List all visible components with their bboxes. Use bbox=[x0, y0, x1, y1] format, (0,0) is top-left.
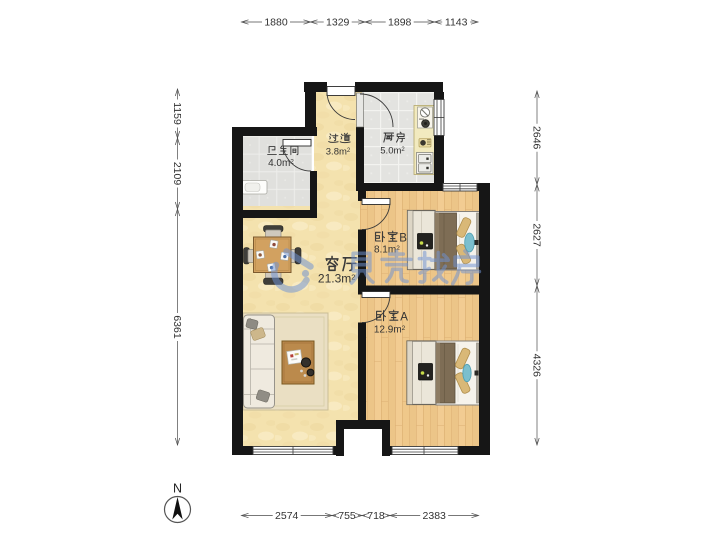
svg-text:1143: 1143 bbox=[445, 17, 468, 29]
svg-text:4326: 4326 bbox=[530, 354, 542, 378]
svg-text:1880: 1880 bbox=[264, 17, 288, 29]
svg-text:2646: 2646 bbox=[530, 126, 542, 150]
svg-text:718: 718 bbox=[367, 510, 385, 522]
svg-text:2627: 2627 bbox=[530, 223, 542, 247]
svg-text:N: N bbox=[173, 482, 182, 496]
svg-text:1329: 1329 bbox=[326, 17, 350, 29]
svg-text:21.3m2: 21.3m2 bbox=[318, 272, 356, 286]
svg-text:2574: 2574 bbox=[275, 510, 299, 522]
svg-text:755: 755 bbox=[338, 510, 356, 522]
svg-text:B: B bbox=[399, 232, 407, 244]
svg-text:12.9m2: 12.9m2 bbox=[374, 324, 406, 335]
svg-text:A: A bbox=[400, 311, 408, 323]
svg-text:2383: 2383 bbox=[423, 510, 447, 522]
svg-text:6361: 6361 bbox=[171, 315, 183, 339]
svg-text:1159: 1159 bbox=[171, 102, 183, 125]
svg-text:1898: 1898 bbox=[388, 17, 412, 29]
svg-text:2109: 2109 bbox=[171, 162, 183, 186]
